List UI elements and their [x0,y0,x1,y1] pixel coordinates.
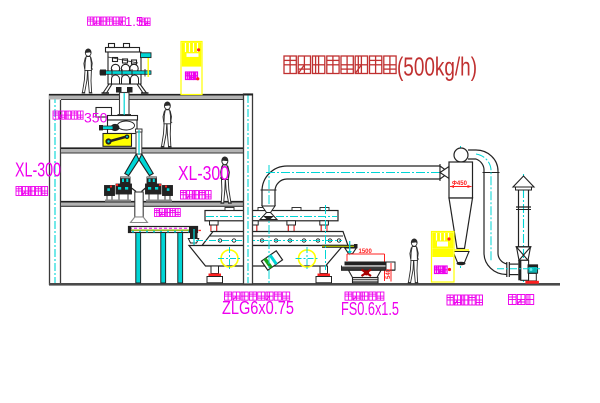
svg-text:FS0.6x1.5: FS0.6x1.5 [341,299,399,319]
svg-text:(500kg/h): (500kg/h) [397,52,477,82]
svg-text:540: 540 [386,268,392,279]
svg-text:350: 350 [84,110,108,126]
svg-text:ZLG6x0.75: ZLG6x0.75 [222,298,294,318]
svg-text:1.5: 1.5 [125,14,143,29]
svg-text:XL-300: XL-300 [178,163,229,185]
svg-text:XL-300: XL-300 [15,160,61,182]
svg-text:Φ450: Φ450 [452,181,468,187]
